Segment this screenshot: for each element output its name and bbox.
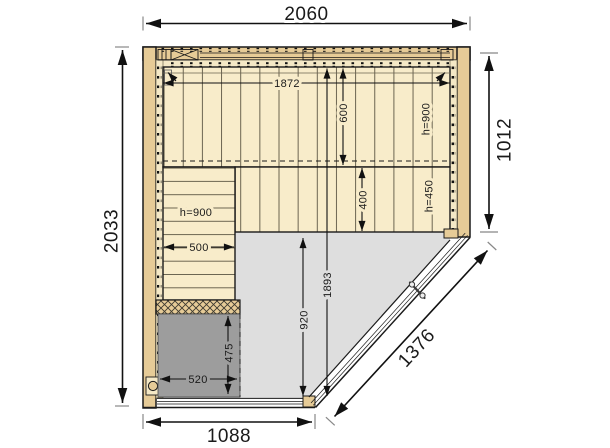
floor-area xyxy=(235,232,450,397)
top-bench-height-label: h=900 xyxy=(421,103,433,135)
right-wall xyxy=(457,47,470,237)
middle-bench xyxy=(235,167,450,232)
dim-right-wall: 1012 xyxy=(480,53,516,232)
dim-door-wall-label: 1376 xyxy=(394,325,439,372)
glass-corner-post xyxy=(148,381,157,390)
dim-floor-depth-label: 920 xyxy=(299,310,311,329)
top-bench-planks xyxy=(163,67,450,167)
sauna-plan-canvas: 2060 2033 1012 1088 1376 xyxy=(0,0,610,448)
dim-overall-depth: 2033 xyxy=(102,47,130,406)
door-corner-block xyxy=(444,229,458,238)
dim-right-wall-label: 1012 xyxy=(495,118,516,162)
dim-overall-width: 2060 xyxy=(143,4,470,31)
hatched-step-hatching xyxy=(156,300,240,314)
front-corner-block xyxy=(303,396,315,407)
right-wall-ticks xyxy=(452,64,456,234)
dim-overall-width-label: 2060 xyxy=(284,4,328,25)
dim-interior-depth-label: 1893 xyxy=(322,272,334,298)
dim-mid-bench-depth-label: 400 xyxy=(358,190,370,209)
dim-top-bench-depth-label: 600 xyxy=(338,103,350,122)
dim-left-bench-width-label: 500 xyxy=(189,242,208,254)
top-wall-ticks-inner xyxy=(165,62,449,66)
left-wall xyxy=(143,47,156,408)
dim-front-width: 1088 xyxy=(143,414,315,447)
door-handle-knob-inner xyxy=(409,282,414,287)
dim-overall-depth-label: 2033 xyxy=(102,209,123,253)
door-handle-knob-outer xyxy=(420,293,425,298)
hatched-step xyxy=(156,300,240,314)
dim-heater-width-label: 520 xyxy=(188,374,207,386)
mid-bench-height-label: h=450 xyxy=(424,180,436,212)
sauna-plan-drawing: 2060 2033 1012 1088 1376 xyxy=(0,0,610,448)
dim-heater-depth-label: 475 xyxy=(224,343,236,362)
left-bench-height-label: h=900 xyxy=(180,207,212,219)
left-bench-planks xyxy=(163,167,235,300)
dim-interior-width-label: 1872 xyxy=(274,78,300,90)
top-bench xyxy=(163,67,450,167)
floor xyxy=(235,232,450,397)
dim-front-width-label: 1088 xyxy=(207,426,251,447)
middle-bench-planks xyxy=(235,167,450,232)
left-bench xyxy=(163,167,235,300)
